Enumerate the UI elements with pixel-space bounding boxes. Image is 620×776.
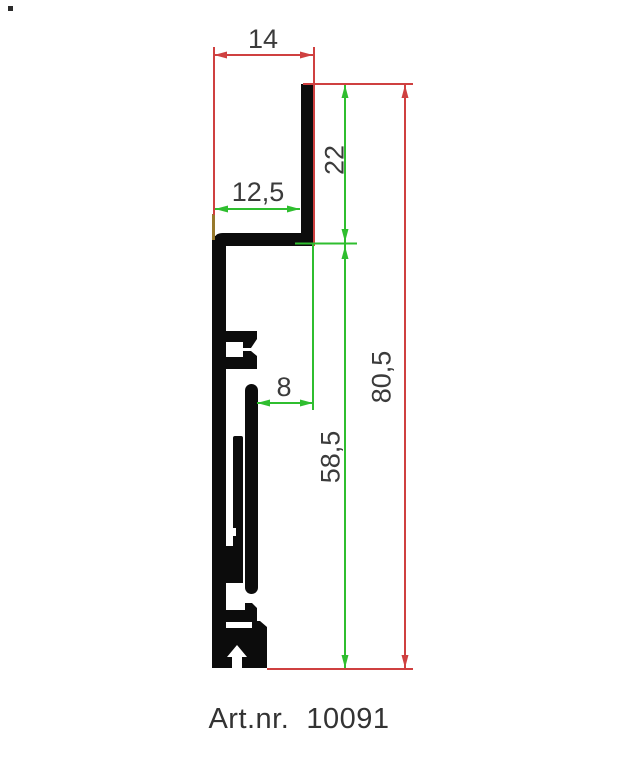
arrow-12-5-right <box>287 206 300 213</box>
profile-tongue-notch <box>230 528 236 536</box>
arrow-80-5-top <box>402 85 409 98</box>
article-number-caption: Art.nr. 10091 <box>208 703 389 736</box>
arrow-14-right <box>300 52 313 59</box>
arrow-14-left <box>214 52 227 59</box>
dim-label-overall-width: 14 <box>248 24 278 54</box>
arrow-22-bottom <box>342 229 349 242</box>
dim-label-top-channel-height: 22 <box>319 145 349 175</box>
dim-label-ledge-width: 12,5 <box>232 177 285 207</box>
arrow-58-5-bottom <box>342 655 349 668</box>
arrow-22-top <box>342 85 349 98</box>
arrow-8-right <box>300 400 313 407</box>
dim-label-overall-height: 80,5 <box>366 351 396 404</box>
profile-dimension-drawing: 14 12,5 8 22 58,5 80,5 <box>0 0 620 776</box>
dim-label-body-height: 58,5 <box>315 431 345 484</box>
profile-foot-fin <box>226 603 257 622</box>
profile-snap-fin-lower <box>226 351 257 369</box>
profile-top-upstand <box>301 84 314 244</box>
profile-main-wall <box>212 236 226 668</box>
arrow-58-5-top <box>342 246 349 259</box>
arrow-80-5-bottom <box>402 655 409 668</box>
scan-artifact-dot <box>8 6 13 11</box>
profile-tongue-base <box>226 546 243 583</box>
arrow-12-5-left <box>215 206 228 213</box>
profile-cross-section <box>212 84 314 668</box>
technical-drawing-page: 14 12,5 8 22 58,5 80,5 Art.nr. 10091 <box>0 0 620 776</box>
dim-label-rib-offset: 8 <box>276 372 291 402</box>
profile-snap-fin-upper <box>226 331 257 348</box>
profile-inner-rib <box>245 384 258 594</box>
arrow-8-left <box>257 400 270 407</box>
